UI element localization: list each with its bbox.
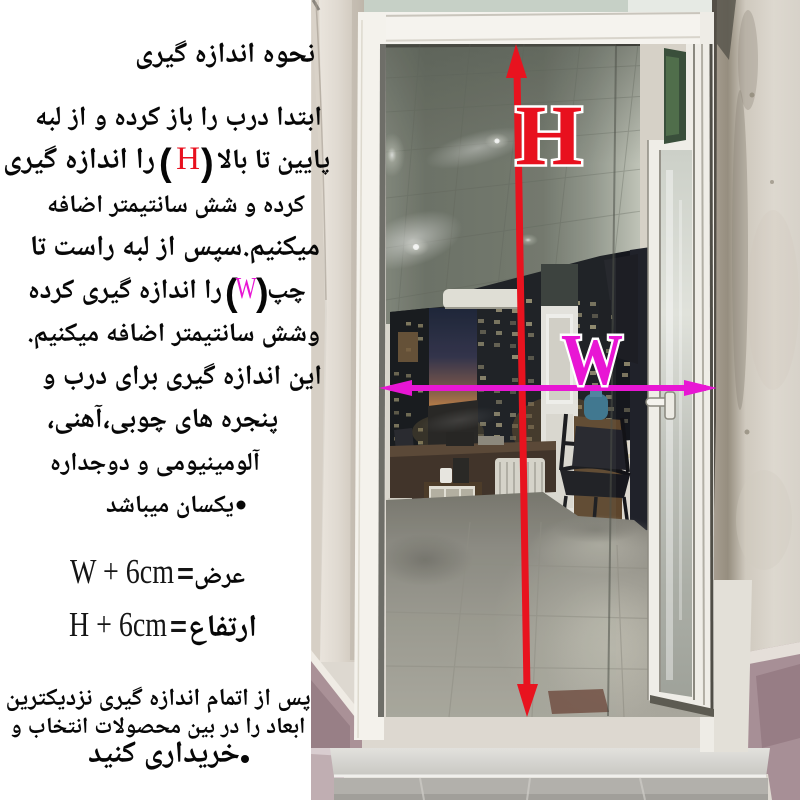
svg-text:H + 6cm: H + 6cm — [69, 605, 167, 644]
svg-text:(: ( — [159, 142, 172, 184]
svg-text:): ) — [201, 142, 214, 184]
svg-text:H: H — [516, 87, 583, 183]
svg-text:=: = — [177, 558, 194, 590]
svg-text:): ) — [256, 272, 269, 314]
svg-text:W: W — [561, 319, 623, 400]
svg-text:W: W — [235, 270, 256, 304]
svg-text:W + 6cm: W + 6cm — [70, 552, 174, 591]
svg-text:=: = — [170, 611, 187, 643]
svg-text:H: H — [176, 141, 200, 177]
